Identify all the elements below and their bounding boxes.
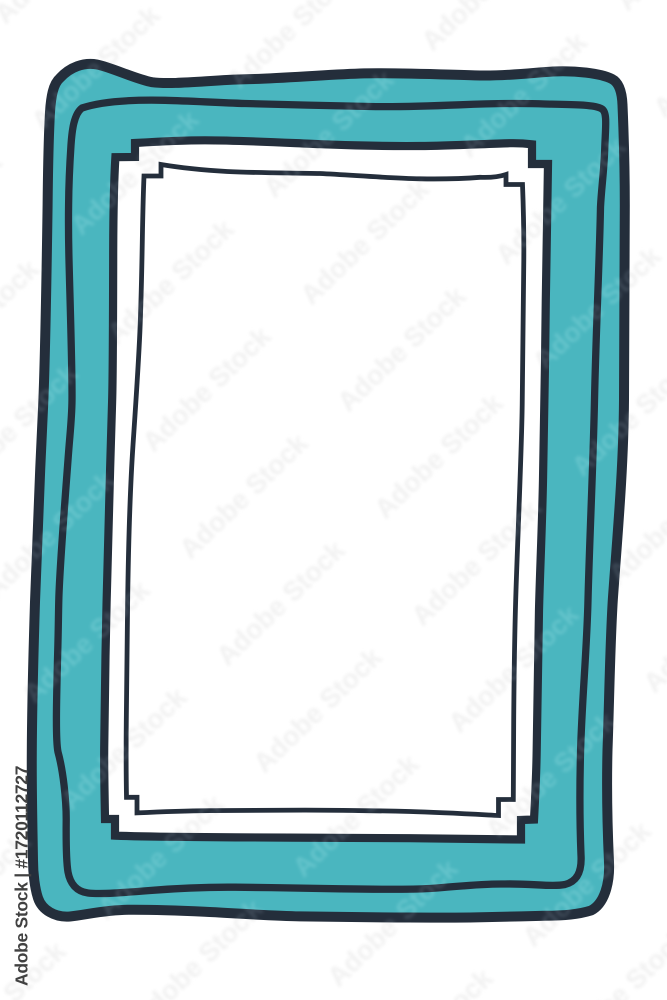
svg-text:Adobe Stock | #1720112727: Adobe Stock | #1720112727 (12, 766, 32, 986)
